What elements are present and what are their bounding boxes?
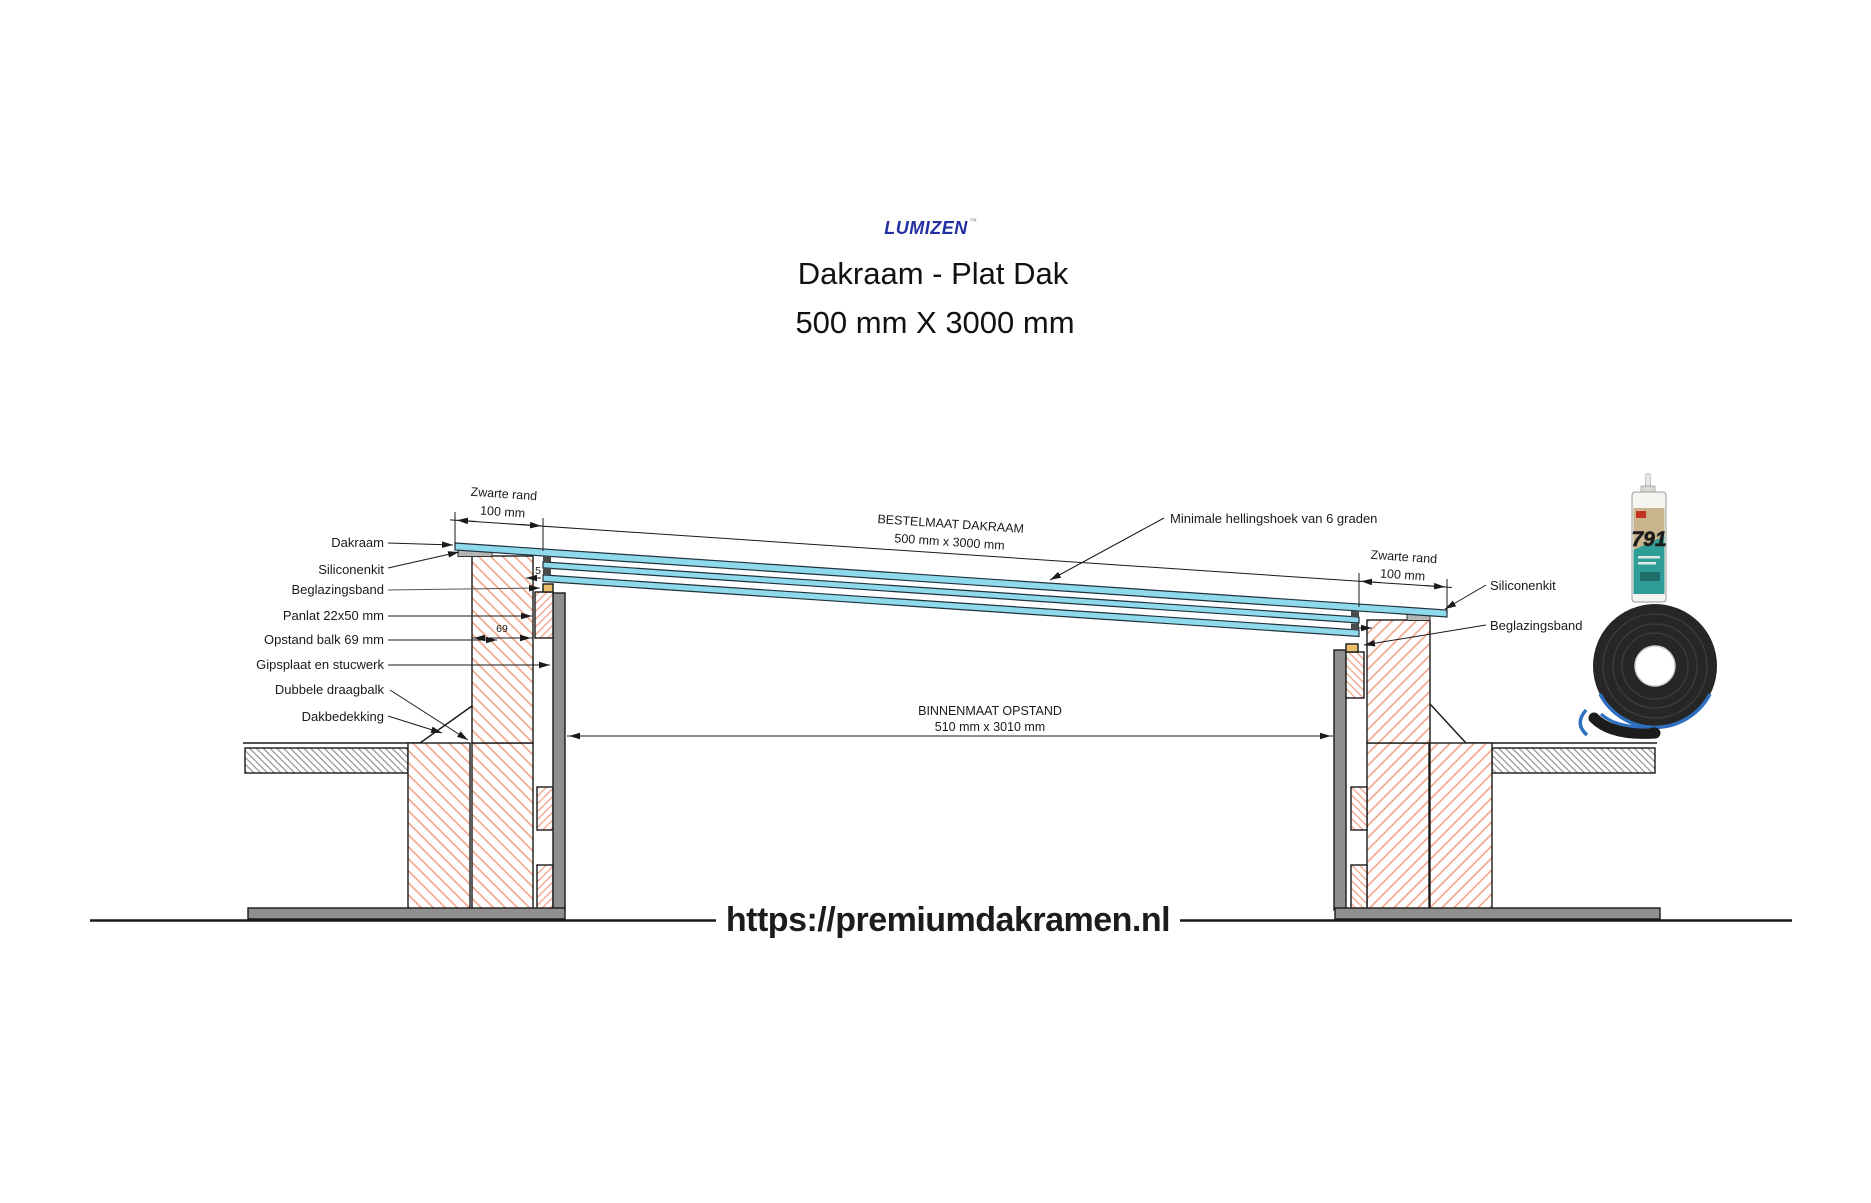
left-plasterboard: [553, 593, 565, 910]
label-dakbedekking: Dakbedekking: [302, 709, 384, 724]
arrow-right-inner: [1361, 581, 1381, 582]
roof-window-glazing: [455, 543, 1447, 637]
right-packer-block-1: [1351, 787, 1367, 830]
glass-step-value: 5: [535, 565, 541, 577]
upstand-width-value: 69: [496, 623, 508, 635]
bestelmaat-value: 500 mm x 3000 mm: [894, 531, 1005, 552]
left-batten-panlat: [535, 592, 553, 638]
left-glazing-band: [543, 584, 553, 592]
left-deck-slab: [245, 748, 408, 773]
right-outer-beam: [1430, 743, 1492, 910]
cartridge-text-line-1: [1638, 556, 1660, 559]
trademark-symbol: ™: [969, 217, 977, 226]
glass-spacer-left-1: [543, 556, 551, 562]
glass-spacer-right-1: [1351, 611, 1359, 617]
label-siliconenkit-left: Siliconenkit: [318, 562, 384, 577]
cartridge-text-line-2: [1638, 562, 1656, 565]
silicone-cartridge-image: 791: [1631, 474, 1666, 602]
lumizen-logo: LUMIZEN: [884, 218, 968, 238]
cartridge-brand-tag: [1636, 511, 1646, 518]
label-beglazingsband-right: Beglazingsband: [1490, 618, 1583, 633]
label-dubbele-draagbalk: Dubbele draagbalk: [275, 682, 385, 697]
right-base-plate: [1335, 908, 1660, 919]
leader-siliconenkit-right: [1445, 585, 1486, 609]
label-beglazingsband-left: Beglazingsband: [291, 582, 384, 597]
label-siliconenkit-right: Siliconenkit: [1490, 578, 1556, 593]
page-title: Dakraam - Plat Dak: [798, 256, 1069, 291]
right-inner-beam: [1367, 743, 1429, 910]
tape-tail-curl: [1580, 710, 1587, 735]
label-opstand-balk: Opstand balk 69 mm: [264, 632, 384, 647]
cartridge-text-block: [1640, 572, 1660, 581]
zwarte-rand-right-line1: Zwarte rand: [1370, 548, 1438, 566]
binnenmaat-value: 510 mm x 3010 mm: [935, 720, 1045, 734]
glass-pane-bottom: [543, 575, 1359, 637]
left-upstand-beam: [472, 556, 533, 743]
leader-dakraam: [388, 543, 453, 545]
glass-spacer-right-2: [1351, 624, 1359, 631]
leader-dubbele-draagbalk: [390, 690, 468, 740]
arrow-left-inner: [521, 525, 541, 526]
left-outer-beam: [408, 743, 470, 910]
left-inner-beam: [472, 743, 533, 910]
label-panlat: Panlat 22x50 mm: [283, 608, 384, 623]
zwarte-rand-left-line2: 100 mm: [480, 503, 526, 520]
zwarte-rand-right-line2: 100 mm: [1380, 566, 1426, 583]
website-url: https://premiumdakramen.nl: [726, 901, 1170, 939]
arrow-right-outer: [1425, 586, 1445, 587]
label-gipsplaat: Gipsplaat en stucwerk: [256, 657, 384, 672]
leader-hellingshoek: [1050, 518, 1164, 580]
label-dakraam: Dakraam: [331, 535, 384, 550]
glass-spacer-left-2: [543, 568, 551, 575]
zwarte-rand-right-label: Zwarte rand 100 mm: [1369, 548, 1438, 584]
page-subtitle-size: 500 mm X 3000 mm: [795, 305, 1074, 340]
right-glazing-band: [1346, 644, 1358, 652]
zwarte-rand-left-label: Zwarte rand 100 mm: [469, 485, 538, 521]
glass-pane-middle: [543, 562, 1359, 623]
right-batten-panlat: [1346, 652, 1364, 698]
binnenmaat-title: BINNENMAAT OPSTAND: [918, 704, 1062, 718]
cartridge-number: 791: [1631, 528, 1666, 551]
leader-siliconenkit-left: [388, 552, 459, 568]
left-base-plate: [248, 908, 565, 919]
glazing-tape-roll-image: [1580, 604, 1717, 735]
zwarte-rand-left-line1: Zwarte rand: [470, 485, 538, 503]
cartridge-collar: [1641, 486, 1655, 492]
arrow-left-outer: [457, 520, 477, 521]
right-packer-block-2: [1351, 865, 1367, 910]
tape-roll-core: [1635, 646, 1675, 686]
right-upstand-beam: [1367, 620, 1430, 743]
left-wall: [248, 550, 565, 920]
left-packer-block-2: [537, 865, 553, 910]
right-plasterboard: [1334, 650, 1346, 910]
header: LUMIZEN ™ Dakraam - Plat Dak 500 mm X 30…: [795, 217, 1074, 340]
flat-roof-window-diagram: LUMIZEN ™ Dakraam - Plat Dak 500 mm X 30…: [0, 0, 1871, 1203]
right-deck-slab: [1492, 748, 1655, 773]
left-packer-block-1: [537, 787, 553, 830]
bestelmaat-label: BESTELMAAT DAKRAAM 500 mm x 3000 mm: [876, 512, 1025, 554]
label-hellingshoek: Minimale hellingshoek van 6 graden: [1170, 511, 1377, 526]
